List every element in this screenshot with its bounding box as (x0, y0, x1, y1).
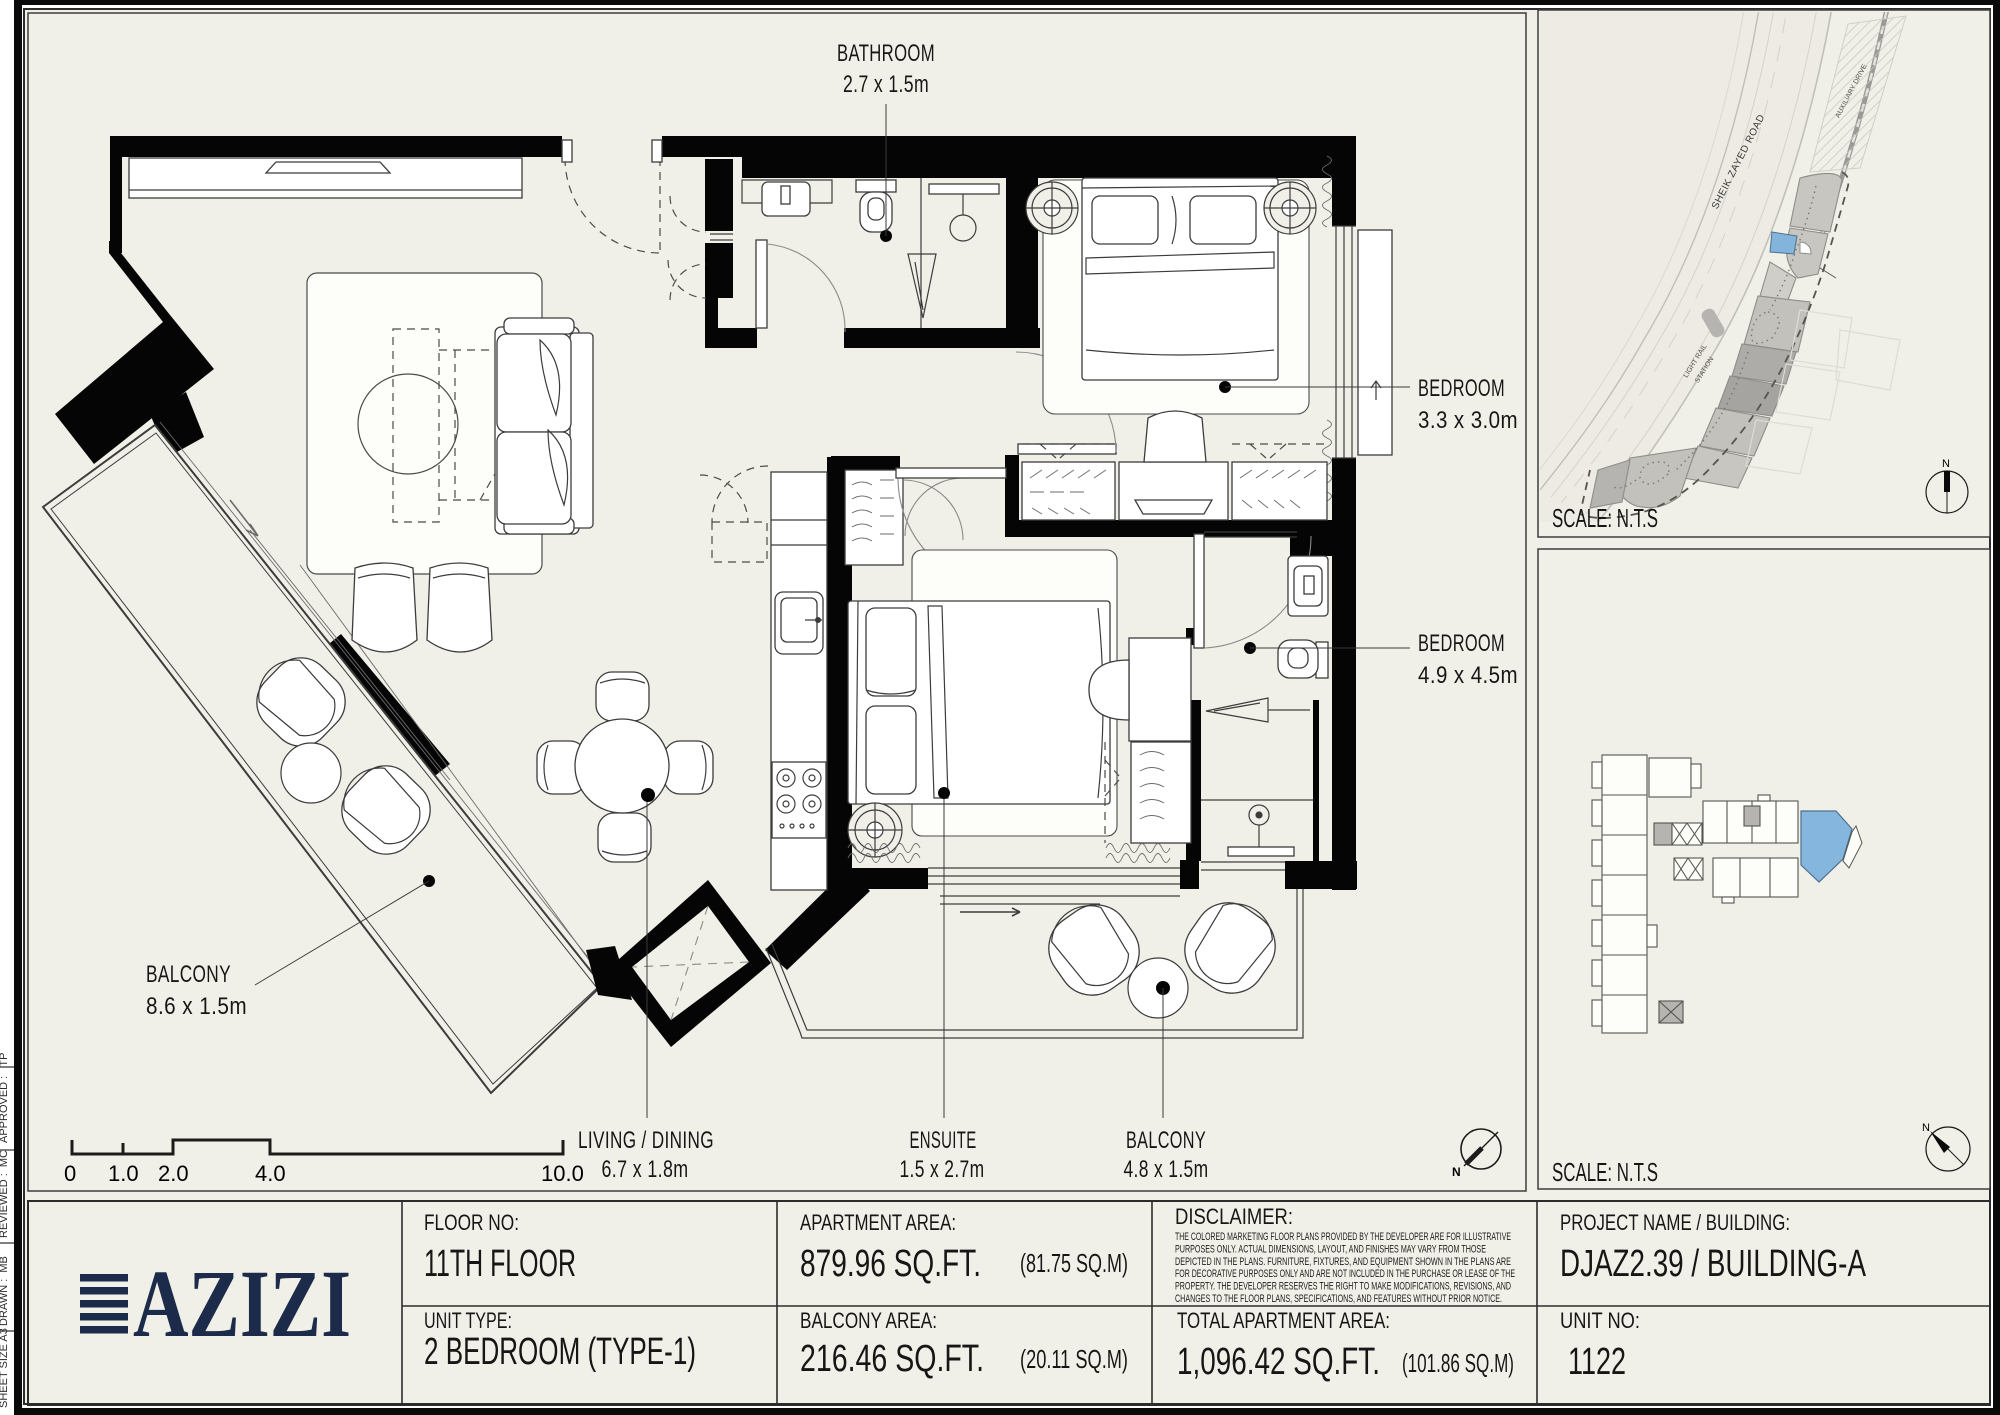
svg-text:APPROVED : TP: APPROVED : TP (0, 1053, 10, 1143)
svg-text:4.0: 4.0 (255, 1161, 286, 1186)
svg-text:10.0: 10.0 (541, 1161, 584, 1186)
svg-text:BALCONY: BALCONY (146, 961, 231, 988)
svg-text:0: 0 (64, 1161, 76, 1186)
svg-text:DEPICTED IN THE PLANS. FURNITU: DEPICTED IN THE PLANS. FURNITURE, FIXTUR… (1175, 1256, 1511, 1268)
svg-text:1.5 x 2.7m: 1.5 x 2.7m (900, 1156, 985, 1183)
svg-text:AZIZI: AZIZI (133, 1250, 351, 1357)
svg-text:DJAZ2.39 / BUILDING-A: DJAZ2.39 / BUILDING-A (1560, 1243, 1866, 1285)
svg-text:1122: 1122 (1568, 1341, 1626, 1383)
svg-text:2.0: 2.0 (158, 1161, 189, 1186)
svg-text:BEDROOM: BEDROOM (1418, 375, 1505, 402)
svg-text:FLOOR NO:: FLOOR NO: (424, 1210, 519, 1235)
svg-text:1.0: 1.0 (108, 1161, 139, 1186)
svg-text:THE COLORED MARKETING FLOOR PL: THE COLORED MARKETING FLOOR PLANS PROVID… (1175, 1231, 1511, 1243)
svg-text:BATHROOM: BATHROOM (837, 40, 935, 67)
svg-text:216.46 SQ.FT.: 216.46 SQ.FT. (800, 1338, 984, 1380)
svg-text:UNIT NO:: UNIT NO: (1560, 1308, 1640, 1333)
svg-text:CHANGES TO THE FLOOR PLANS, SP: CHANGES TO THE FLOOR PLANS, SPECIFICATIO… (1175, 1293, 1502, 1305)
svg-text:(101.86 SQ.M): (101.86 SQ.M) (1402, 1348, 1514, 1378)
svg-text:DISCLAIMER:: DISCLAIMER: (1175, 1204, 1293, 1229)
svg-text:(81.75 SQ.M): (81.75 SQ.M) (1020, 1248, 1128, 1278)
svg-text:LIVING / DINING: LIVING / DINING (578, 1127, 714, 1154)
svg-text:4.8 x 1.5m: 4.8 x 1.5m (1124, 1156, 1209, 1183)
svg-text:2.7 x 1.5m: 2.7 x 1.5m (843, 71, 929, 98)
svg-text:BALCONY AREA:: BALCONY AREA: (800, 1308, 937, 1333)
svg-text:N: N (1452, 1165, 1461, 1179)
svg-text:N: N (1922, 1122, 1930, 1134)
svg-text:879.96 SQ.FT.: 879.96 SQ.FT. (800, 1243, 981, 1285)
svg-text:PROJECT NAME / BUILDING:: PROJECT NAME / BUILDING: (1560, 1210, 1790, 1235)
svg-text:UNIT TYPE:: UNIT TYPE: (424, 1308, 512, 1333)
svg-text:SHEET SIZE A3: SHEET SIZE A3 (0, 1328, 10, 1408)
svg-text:4.9 x 4.5m: 4.9 x 4.5m (1418, 662, 1518, 689)
svg-text:11TH FLOOR: 11TH FLOOR (424, 1243, 576, 1285)
svg-text:TOTAL APARTMENT AREA:: TOTAL APARTMENT AREA: (1177, 1308, 1390, 1333)
svg-text:SCALE: N.T.S: SCALE: N.T.S (1552, 503, 1658, 533)
svg-text:2 BEDROOM (TYPE-1): 2 BEDROOM (TYPE-1) (424, 1331, 696, 1373)
svg-text:FOR DECORATIVE PURPOSES ONLY A: FOR DECORATIVE PURPOSES ONLY AND ARE NOT… (1175, 1268, 1515, 1280)
svg-text:REVIEWED : MC: REVIEWED : MC (0, 1150, 10, 1238)
svg-text:DRAWN : MB: DRAWN : MB (0, 1256, 10, 1326)
svg-text:N: N (1942, 458, 1950, 470)
svg-text:(20.11 SQ.M): (20.11 SQ.M) (1020, 1344, 1128, 1374)
svg-text:6.7 x 1.8m: 6.7 x 1.8m (602, 1156, 689, 1183)
svg-text:SCALE: N.T.S: SCALE: N.T.S (1552, 1157, 1658, 1187)
svg-text:ENSUITE: ENSUITE (910, 1127, 977, 1154)
svg-text:8.6 x 1.5m: 8.6 x 1.5m (146, 993, 247, 1020)
svg-text:3.3 x 3.0m: 3.3 x 3.0m (1418, 407, 1518, 434)
svg-text:APARTMENT AREA:: APARTMENT AREA: (800, 1210, 956, 1235)
svg-text:PURPOSES ONLY. ACTUAL DIMENSIO: PURPOSES ONLY. ACTUAL DIMENSIONS, LAYOUT… (1175, 1243, 1486, 1255)
svg-text:BEDROOM: BEDROOM (1418, 630, 1505, 657)
svg-text:1,096.42 SQ.FT.: 1,096.42 SQ.FT. (1177, 1341, 1380, 1383)
svg-text:PROPERTY. THE DEVELOPER RESERV: PROPERTY. THE DEVELOPER RESERVES THE RIG… (1175, 1281, 1511, 1293)
svg-text:BALCONY: BALCONY (1126, 1127, 1206, 1154)
